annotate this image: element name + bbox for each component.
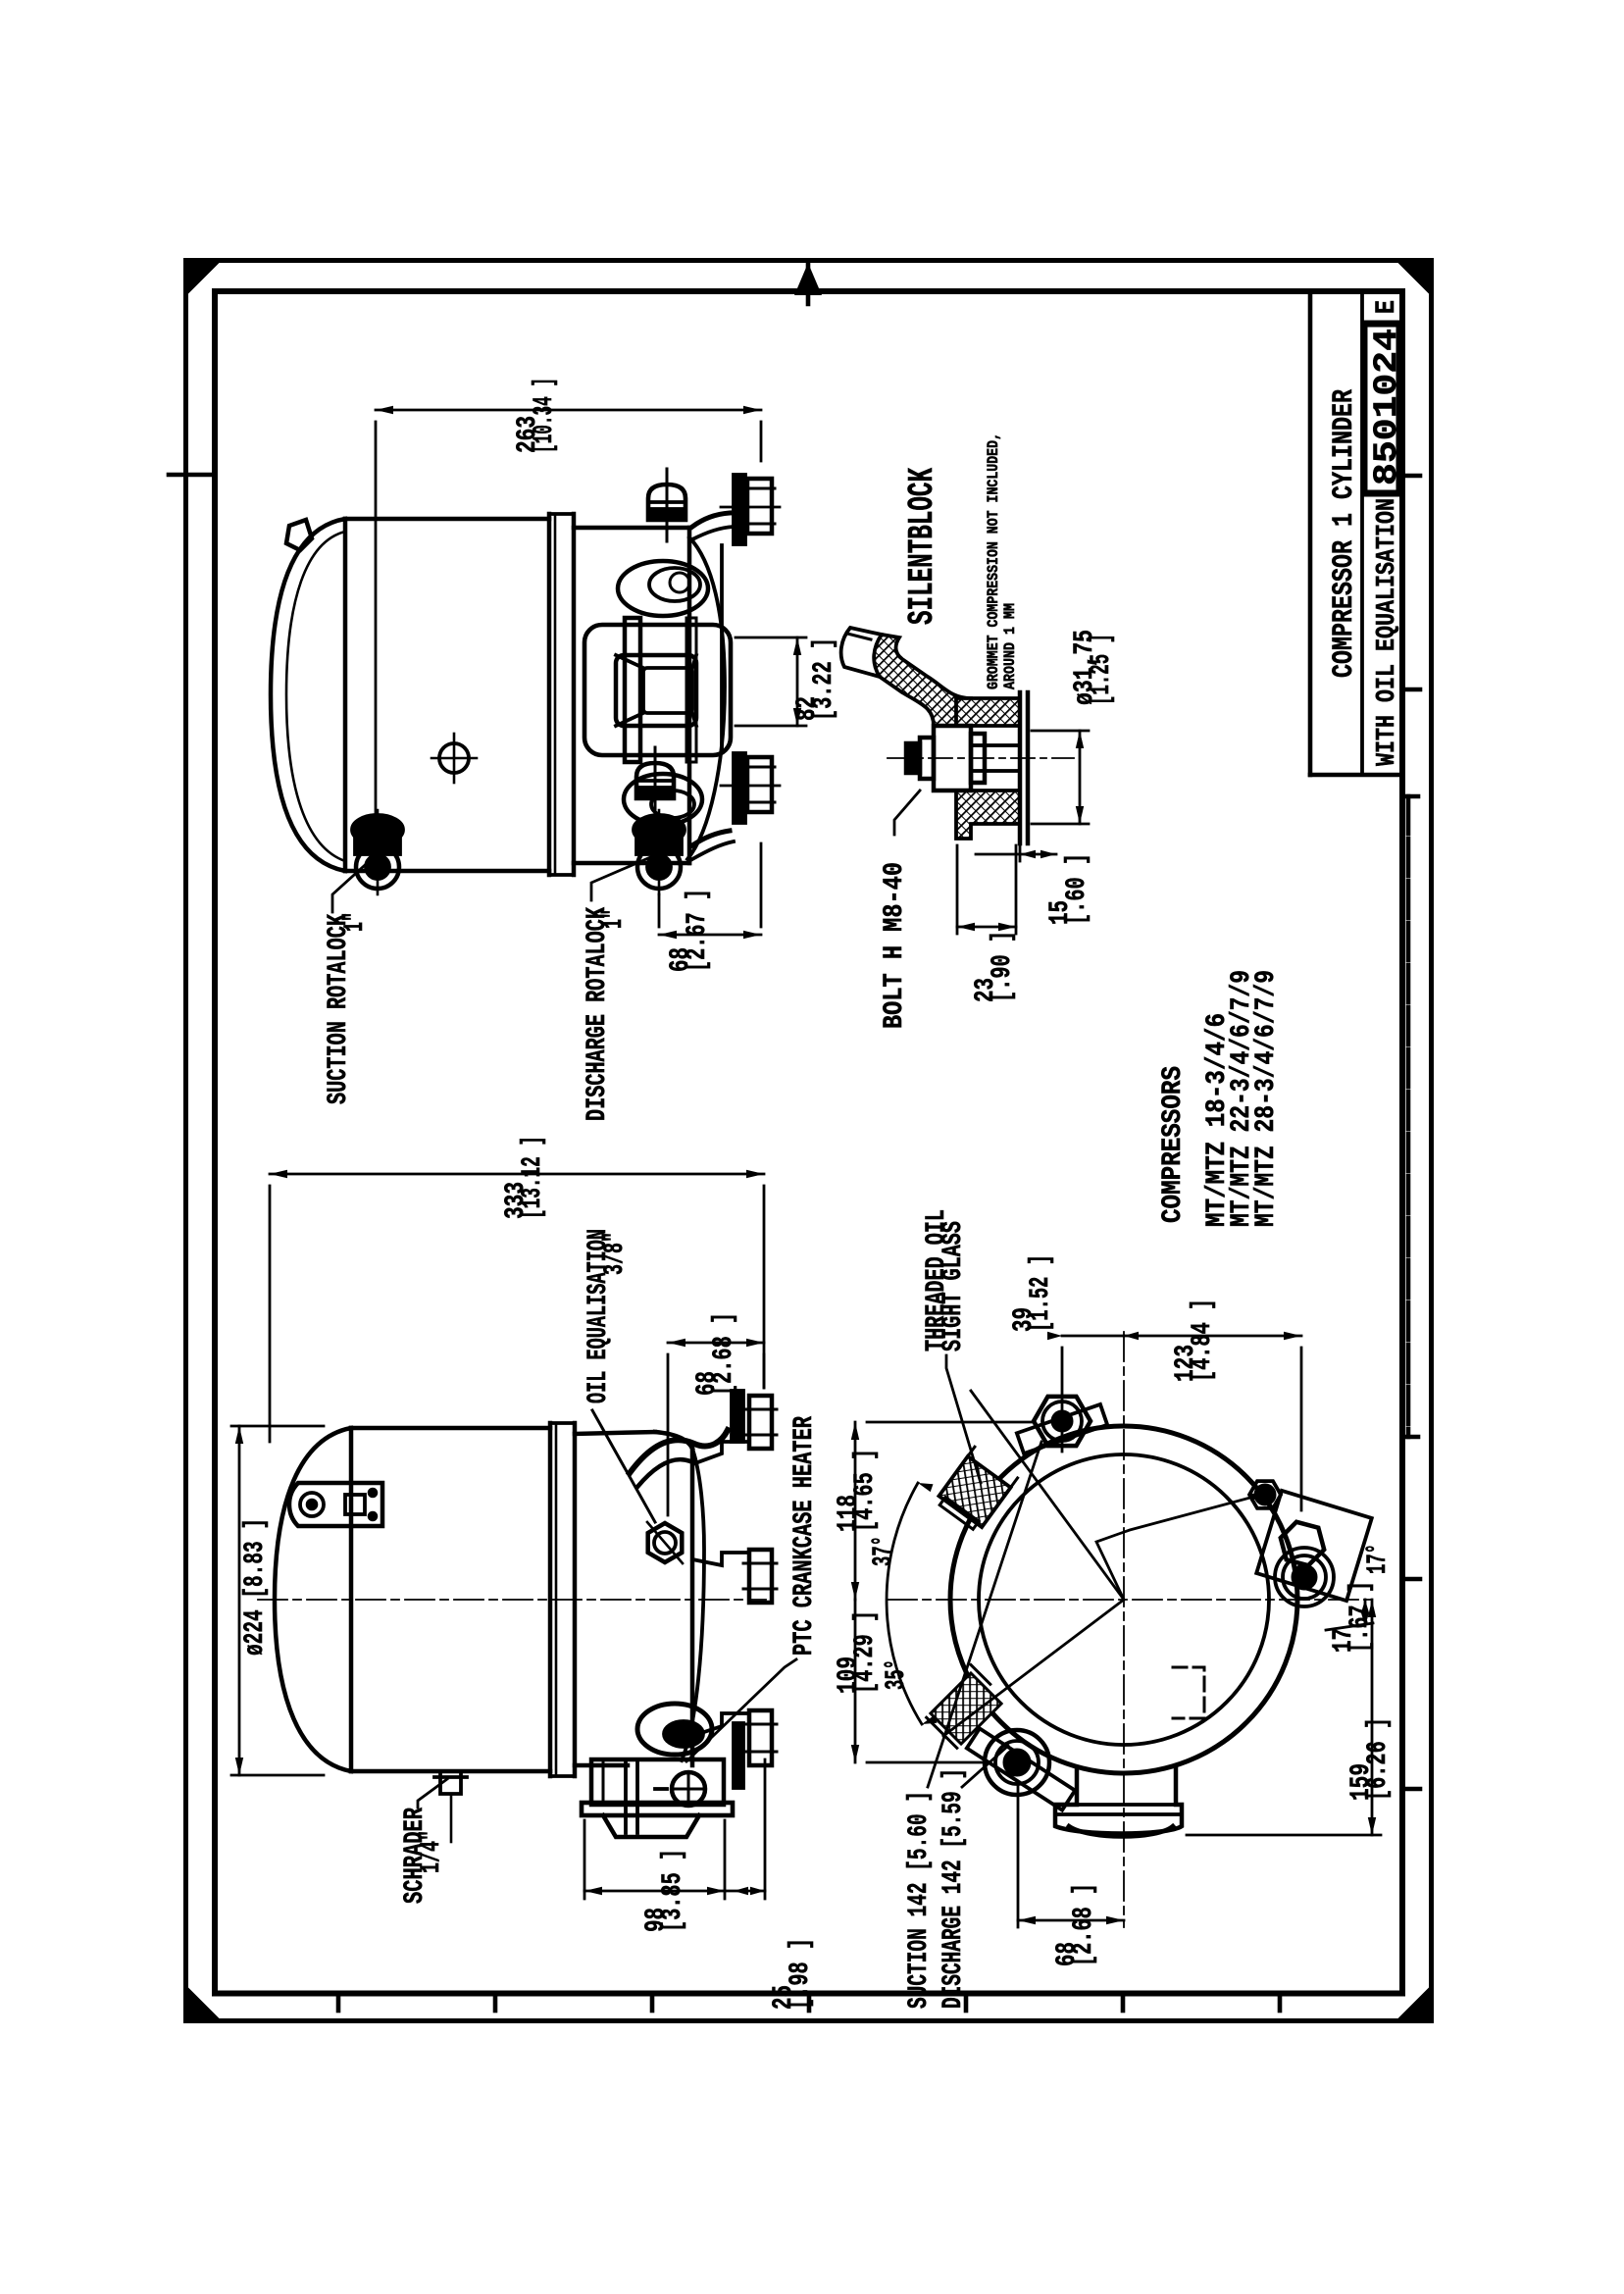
svg-text:[1.25 ]: [1.25 ]: [1087, 634, 1117, 705]
svg-text:3/8": 3/8": [600, 1232, 631, 1275]
svg-text:[.60 ]: [.60 ]: [1062, 853, 1092, 925]
svg-text:MT/MTZ 28-3/4/6/7/9: MT/MTZ 28-3/4/6/7/9: [1251, 970, 1282, 1227]
svg-text:[3.22 ]: [3.22 ]: [809, 637, 839, 721]
svg-text:[.98 ]: [.98 ]: [786, 1938, 816, 2010]
svg-text:[13.12 ]: [13.12 ]: [518, 1136, 548, 1219]
svg-text:SILENTBLOCK: SILENTBLOCK: [902, 468, 942, 625]
svg-text:DISCHARGE ROTALOCK: DISCHARGE ROTALOCK: [583, 907, 613, 1121]
svg-text:[6.26 ]: [6.26 ]: [1363, 1717, 1394, 1801]
svg-text:DISCHARGE 142 [5.59 ]: DISCHARGE 142 [5.59 ]: [939, 1768, 969, 2009]
svg-text:1": 1": [340, 912, 371, 932]
svg-text:[10.34 ]: [10.34 ]: [530, 378, 560, 453]
svg-text:GROMMET COMPRESSION NOT INCLUD: GROMMET COMPRESSION NOT INCLUDED,: [985, 433, 1002, 689]
svg-text:37°: 37°: [869, 1536, 899, 1566]
svg-text:SIGHT GLASS: SIGHT GLASS: [939, 1221, 969, 1351]
svg-text:[4.29 ]: [4.29 ]: [850, 1610, 881, 1694]
svg-text:[2.68 ]: [2.68 ]: [1069, 1883, 1099, 1966]
svg-text:COMPRESSORS: COMPRESSORS: [1158, 1066, 1189, 1223]
svg-text:AROUND 1 MM: AROUND 1 MM: [1001, 603, 1019, 689]
svg-text:BOLT H M8-40: BOLT H M8-40: [880, 862, 910, 1029]
svg-text:E: E: [1372, 300, 1402, 314]
svg-text:35°: 35°: [882, 1659, 912, 1690]
svg-text:ø224 [8.83 ]: ø224 [8.83 ]: [240, 1518, 271, 1656]
svg-text:SUCTION 142 [5.60 ]: SUCTION 142 [5.60 ]: [904, 1791, 935, 2009]
svg-text:PTC CRANKCASE HEATER: PTC CRANKCASE HEATER: [789, 1416, 820, 1656]
svg-text:SUCTION ROTALOCK: SUCTION ROTALOCK: [324, 914, 354, 1104]
svg-text:8501024: 8501024: [1369, 329, 1406, 485]
svg-text:1": 1": [599, 909, 630, 929]
svg-text:[1.52 ]: [1.52 ]: [1026, 1254, 1056, 1332]
svg-text:[4.84 ]: [4.84 ]: [1188, 1299, 1218, 1382]
svg-text:COMPRESSOR 1 CYLINDER: COMPRESSOR 1 CYLINDER: [1328, 389, 1361, 678]
svg-text:[2.67 ]: [2.67 ]: [683, 889, 713, 972]
svg-text:[.90 ]: [.90 ]: [988, 931, 1018, 1002]
svg-text:[2.68 ]: [2.68 ]: [709, 1312, 739, 1396]
svg-text:WITH OIL EQUALISATION: WITH OIL EQUALISATION: [1373, 498, 1402, 766]
svg-text:[4.65 ]: [4.65 ]: [850, 1449, 881, 1532]
svg-text:1/4": 1/4": [417, 1830, 447, 1873]
svg-text:[3.85 ]: [3.85 ]: [658, 1849, 688, 1932]
svg-text:17°: 17°: [1363, 1544, 1394, 1574]
